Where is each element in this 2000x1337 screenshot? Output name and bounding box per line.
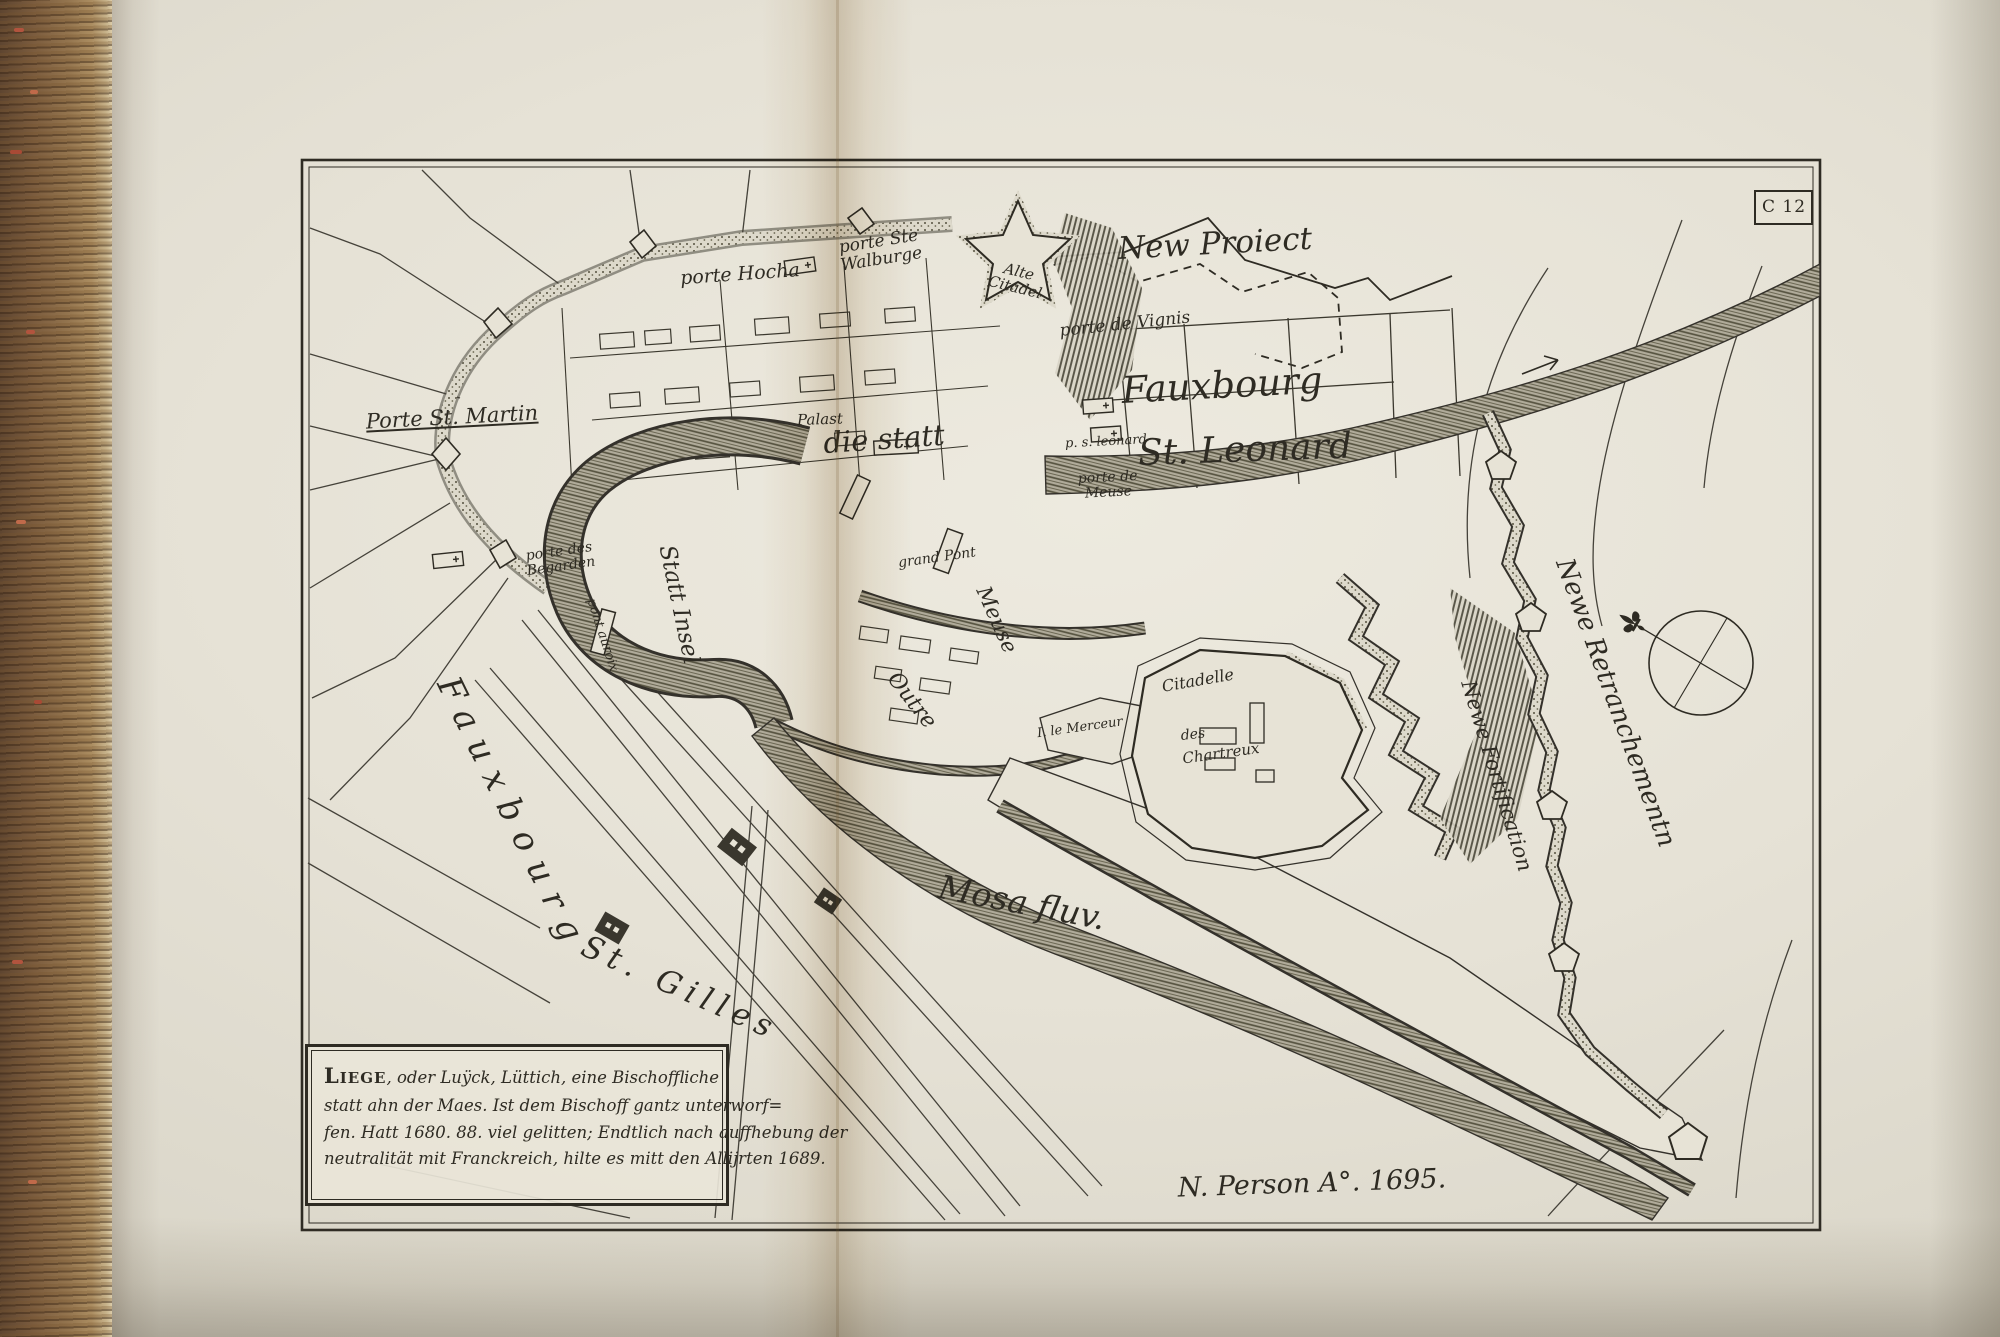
flow-arrow bbox=[1522, 356, 1558, 374]
cartouche-inner-frame: Liege, oder Luÿck, Lüttich, eine Bischof… bbox=[311, 1050, 723, 1200]
fleur-de-lis-icon bbox=[1613, 605, 1651, 640]
compass-rose bbox=[1613, 605, 1753, 715]
label-des: des bbox=[1180, 726, 1206, 743]
fore-edge-fleck bbox=[10, 150, 22, 154]
fore-edge-fleck bbox=[34, 700, 42, 704]
fore-edge-fleck bbox=[16, 520, 26, 524]
fore-edge-fleck bbox=[28, 1180, 37, 1184]
book-fore-edge bbox=[0, 0, 112, 1337]
label-st-leonard: St. Leonard bbox=[1138, 428, 1353, 473]
fore-edge-fleck bbox=[30, 90, 38, 94]
fore-edge-fleck bbox=[14, 28, 24, 32]
title-cartouche: Liege, oder Luÿck, Lüttich, eine Bischof… bbox=[305, 1044, 729, 1206]
cartouche-line-3: fen. Hatt 1680. 88. viel gelitten; Endtl… bbox=[324, 1120, 714, 1147]
engraved-map-liege: C 12 New Proiect porte Hocha porte Ste W… bbox=[300, 158, 1822, 1232]
cartouche-line-2: statt ahn der Maes. Ist dem Bischoff gan… bbox=[324, 1093, 714, 1120]
fore-edge-fleck bbox=[12, 960, 23, 964]
plate-mark: C 12 bbox=[1762, 199, 1806, 217]
right-page-shadow bbox=[1930, 0, 2000, 1337]
cartouche-line-1: Liege, oder Luÿck, Lüttich, eine Bischof… bbox=[324, 1059, 714, 1093]
photo-of-atlas-page: C 12 New Proiect porte Hocha porte Ste W… bbox=[0, 0, 2000, 1337]
label-porte-de-meuse: porte de Meuse bbox=[1077, 469, 1138, 501]
dark-building-blocks bbox=[594, 828, 842, 945]
cartouche-line-4: neutralität mit Franckreich, hilte es mi… bbox=[324, 1146, 714, 1173]
bottom-page-shadow bbox=[0, 1217, 2000, 1337]
fore-edge-fleck bbox=[26, 330, 35, 334]
pont-des-arches-bridge bbox=[840, 475, 870, 519]
label-die-statt: die statt bbox=[822, 420, 945, 459]
